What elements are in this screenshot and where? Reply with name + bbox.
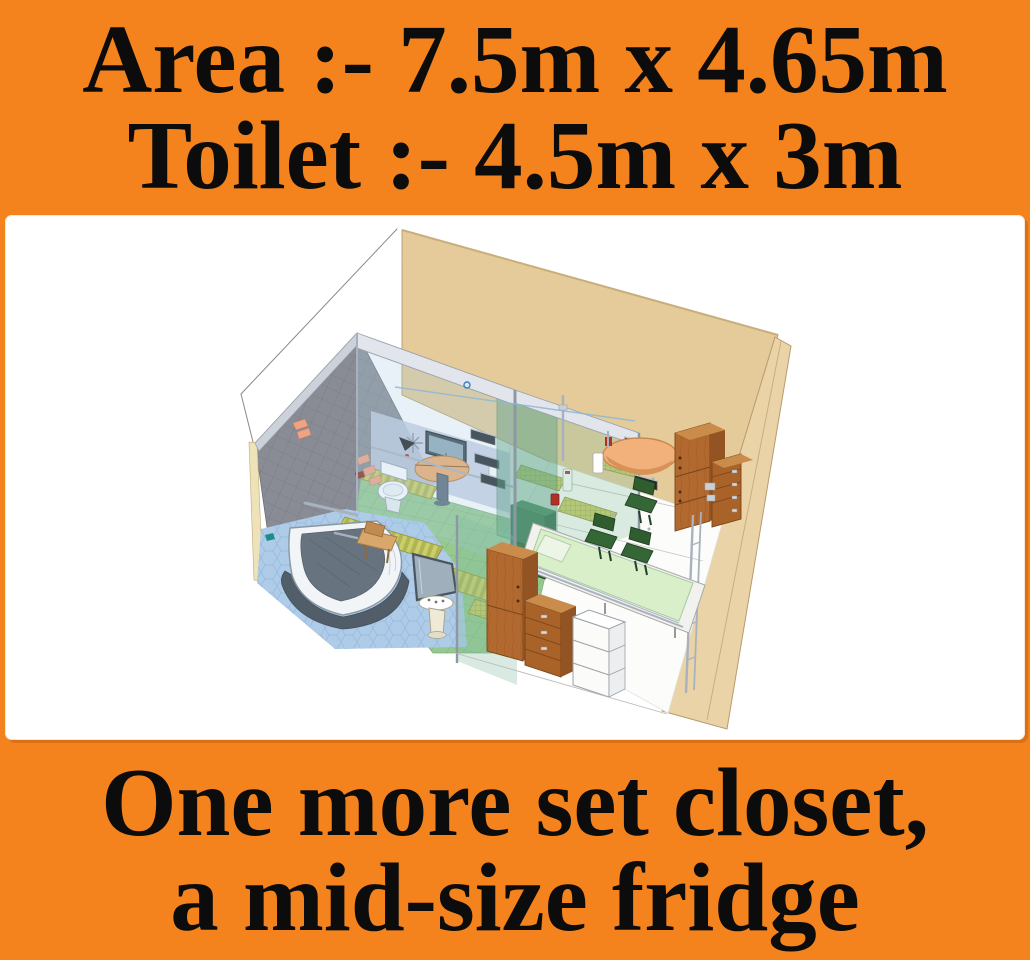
pole-bracket — [559, 405, 567, 410]
drawer-handle — [732, 509, 737, 512]
header-line-1: Area :- 7.5m x 4.65m — [0, 12, 1030, 107]
cabinet-handle — [517, 586, 520, 589]
drawer-handle — [732, 496, 737, 499]
wardrobe-handle — [679, 500, 682, 503]
header-text: Area :- 7.5m x 4.65m Toilet :- 4.5m x 3m — [0, 0, 1030, 215]
wardrobe-handle — [679, 457, 682, 460]
sink-base — [428, 632, 446, 639]
drawer-handle — [541, 647, 547, 650]
room-3d-render — [5, 215, 1025, 740]
render-panel — [5, 215, 1025, 740]
wall-bracket — [705, 483, 715, 490]
fridge-front — [573, 617, 609, 697]
sink-tap — [442, 600, 445, 603]
fridge-side — [609, 622, 625, 697]
drawer-handle — [732, 483, 737, 486]
wardrobe-handle — [679, 491, 682, 494]
chair-knob — [612, 514, 615, 517]
wardrobe-handle — [679, 467, 682, 470]
footer-text: One more set closet, a mid-size fridge — [0, 740, 1030, 960]
fridge-boxes — [573, 610, 625, 697]
sink-tap — [435, 601, 438, 604]
chair-knob — [652, 478, 655, 481]
bottle — [593, 453, 603, 473]
drawer-handle — [732, 470, 737, 473]
shower-control-red — [551, 494, 559, 505]
drawer-handle — [541, 631, 547, 634]
footer-line-2: a mid-size fridge — [0, 850, 1030, 945]
wireframe-left-corner — [241, 394, 254, 446]
footer-line-1: One more set closet, — [0, 755, 1030, 850]
header-line-2: Toilet :- 4.5m x 3m — [0, 108, 1030, 203]
tall-cabinet-grain — [487, 549, 523, 661]
chair-knob — [648, 528, 651, 531]
cabinet-handle — [517, 600, 520, 603]
sink-tap — [428, 599, 431, 602]
drawer-handle — [541, 615, 547, 618]
wall-bracket — [707, 495, 715, 501]
sink-pedestal — [429, 608, 445, 635]
